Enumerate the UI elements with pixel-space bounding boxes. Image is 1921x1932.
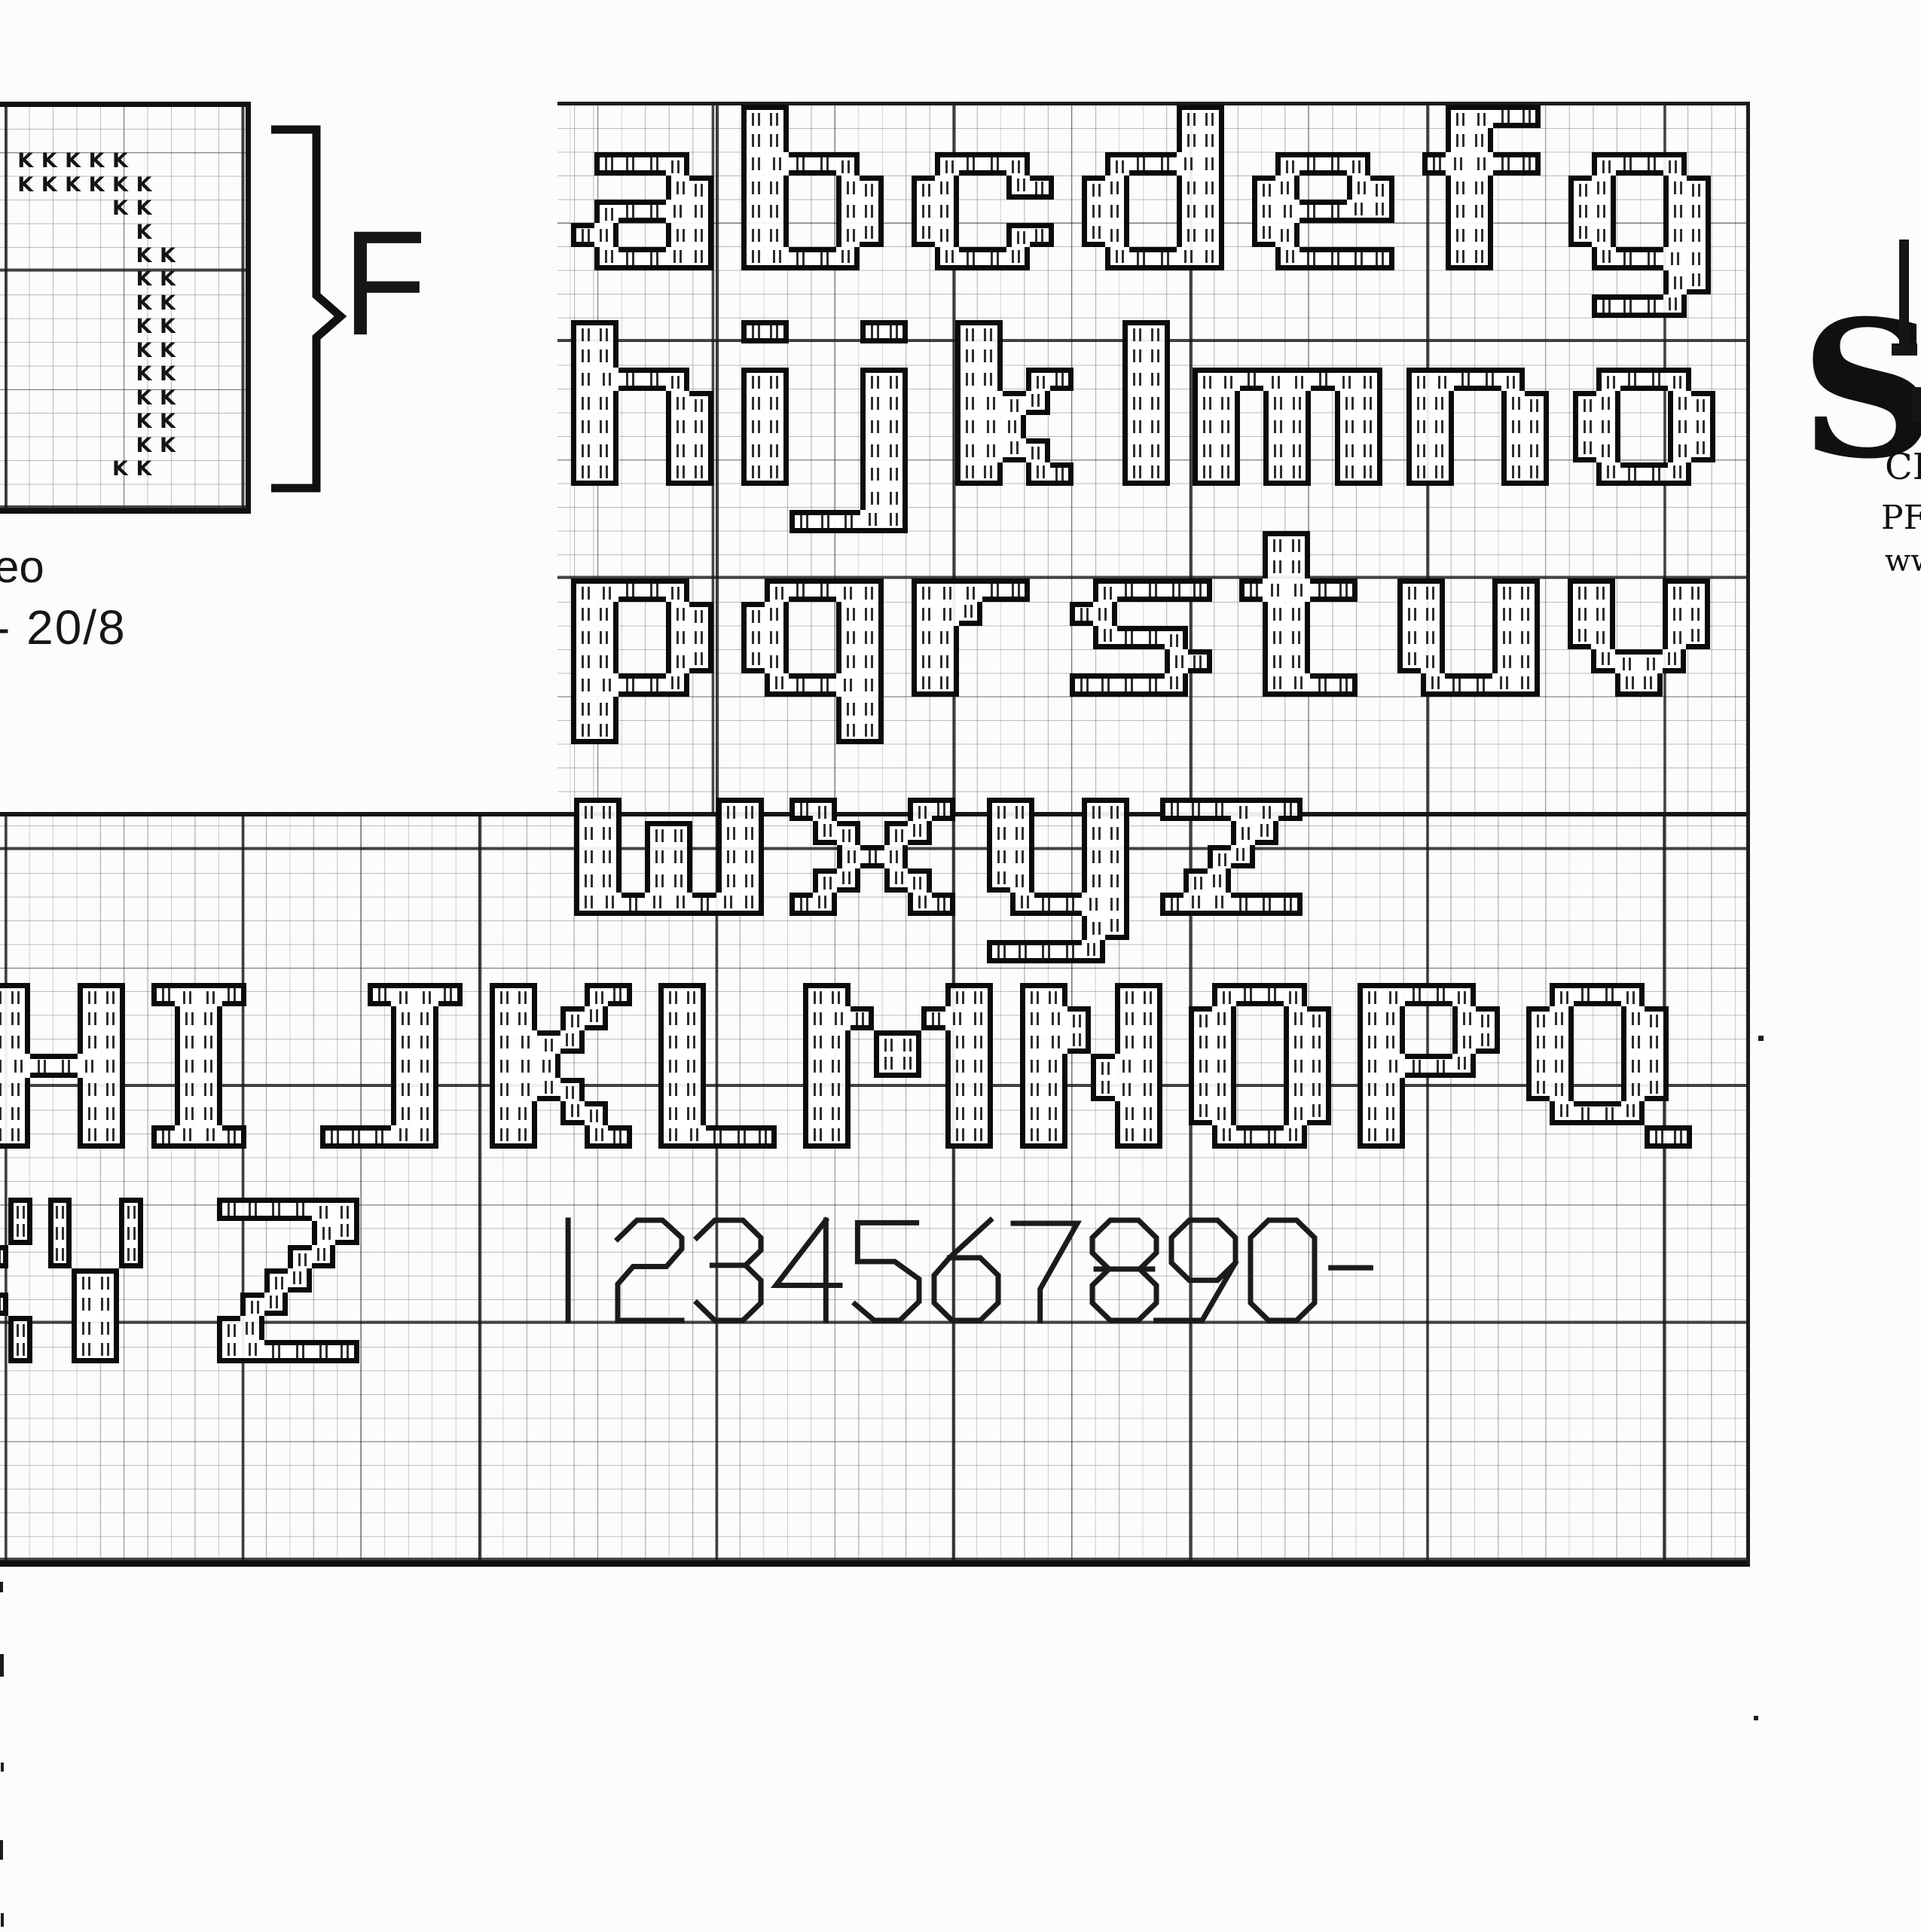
stitch-symbol — [185, 1083, 194, 1096]
stitch-symbol — [1294, 1083, 1303, 1096]
glyph-i-cell — [151, 1125, 175, 1149]
glyph-u-cell — [1492, 626, 1516, 649]
stitch-symbol — [1125, 679, 1133, 691]
glyph-i-cell — [199, 1030, 222, 1054]
glyph-f-cell — [1446, 223, 1470, 247]
glyph-h-cell — [78, 1125, 101, 1149]
stitch-symbol — [1437, 988, 1445, 1001]
glyph-u-cell — [1421, 626, 1445, 649]
stitch-symbol — [932, 1012, 940, 1025]
stitch-symbol — [1691, 608, 1700, 621]
stitch-symbol — [0, 1012, 2, 1025]
stitch-symbol — [997, 806, 1006, 819]
glyph-l-cell — [682, 1125, 706, 1149]
glyph-a-cell — [666, 175, 689, 200]
glyph-n-cell — [1477, 368, 1501, 391]
stitch-symbol — [966, 397, 974, 410]
stitch-symbol — [0, 1298, 1, 1311]
glyph-t-cell — [1310, 673, 1334, 697]
stitch-symbol — [865, 631, 873, 644]
glyph-f-cell — [1493, 152, 1517, 175]
knit-symbol-k: K — [156, 433, 179, 456]
stitch-symbol — [1648, 157, 1656, 170]
glyph-v-cell — [1663, 602, 1686, 626]
stitch-symbol — [317, 1248, 325, 1261]
glyph-z-cell — [1255, 821, 1278, 845]
glyph-n-cell — [1430, 368, 1454, 391]
glyph-x-cell — [884, 868, 908, 893]
glyph-y-cell — [1010, 893, 1034, 916]
stitch-symbol — [1203, 444, 1211, 457]
glyph-w-cell — [645, 868, 669, 893]
stitch-symbol — [673, 205, 682, 218]
glyph-x-cell — [908, 821, 932, 845]
stitch-symbol — [895, 829, 903, 842]
glyph-q-cell — [860, 649, 884, 673]
glyph-k-cell — [490, 983, 513, 1006]
glyph-p-cell — [666, 578, 689, 602]
stitch-symbol — [582, 373, 590, 386]
glyph-f-cell — [1517, 105, 1541, 128]
stitch-symbol — [818, 806, 826, 819]
logo-text-line-1: CI — [1885, 446, 1921, 488]
glyph-r-cell — [935, 602, 959, 626]
stitch-symbol — [1318, 679, 1327, 691]
glyph-f-cell — [1446, 175, 1470, 200]
glyph-c-cell — [959, 152, 982, 175]
stitch-symbol — [162, 1131, 170, 1143]
glyph-n-cell — [1043, 1078, 1067, 1101]
glyph-m-cell — [1335, 462, 1358, 486]
stitch-symbol — [984, 373, 992, 386]
stitch-symbol — [1271, 584, 1279, 597]
stitch-symbol — [1408, 608, 1416, 621]
glyph-p-cell — [1358, 1101, 1381, 1125]
stitch-symbol — [1345, 420, 1354, 433]
glyph-m-cell — [1358, 391, 1382, 415]
stitch-symbol — [1673, 587, 1681, 600]
glyph-h-cell — [594, 343, 618, 368]
stitch-symbol — [1626, 676, 1634, 689]
stitch-symbol — [228, 1324, 236, 1337]
glyph-q-cell — [812, 673, 836, 697]
stitch-symbol — [296, 1203, 304, 1216]
glyph-y-cell — [1105, 868, 1129, 893]
stitch-symbol — [865, 184, 873, 197]
glyph-n-cell — [1020, 1030, 1043, 1054]
stitch-symbol — [814, 1060, 822, 1073]
glyph-p-cell — [594, 673, 618, 697]
glyph-p-cell — [594, 697, 618, 721]
stitch-symbol — [1133, 328, 1141, 341]
glyph-q-cell — [836, 649, 860, 673]
glyph-o-cell — [1691, 415, 1715, 438]
stitch-symbol — [1331, 252, 1339, 265]
glyph-n-cell — [1115, 1006, 1138, 1030]
stitch-symbol — [1101, 679, 1110, 691]
stitch-symbol — [82, 1298, 90, 1311]
glyph-n-cell — [1501, 391, 1525, 415]
glyph-q-cell — [1645, 1125, 1669, 1149]
stitch-symbol — [1626, 991, 1635, 1004]
knit-symbol-k: K — [156, 410, 179, 433]
stitch-symbol — [847, 229, 855, 242]
glyph-l-cell — [1146, 320, 1170, 343]
stitch-symbol — [1110, 182, 1119, 194]
stitch-symbol — [1674, 276, 1682, 289]
stitch-symbol — [1454, 157, 1462, 170]
glyph-q-cell — [1645, 1078, 1669, 1101]
stitch-symbol — [1042, 898, 1050, 911]
stitch-symbol — [1652, 468, 1660, 481]
stitch-symbol — [1281, 229, 1289, 242]
glyph-d-cell — [1177, 247, 1200, 270]
stitch-symbol — [974, 1036, 982, 1048]
stitch-symbol — [1555, 1060, 1563, 1073]
glyph-g-cell — [1592, 152, 1616, 175]
glyph-l-cell — [753, 1125, 777, 1149]
stitch-symbol — [956, 1083, 964, 1096]
glyph-z2-cell — [312, 1221, 335, 1245]
stitch-symbol — [997, 871, 1006, 884]
stitch-symbol — [1632, 1060, 1640, 1073]
digit-0 — [1251, 1220, 1315, 1320]
stitch-symbol — [1345, 465, 1354, 478]
stitch-symbol — [1149, 679, 1157, 691]
stitch-symbol — [1389, 991, 1397, 1004]
glyph-l-cell — [1122, 343, 1146, 368]
stitch-symbol — [1292, 539, 1300, 552]
glyph-v-cell — [1638, 649, 1663, 673]
stitch-symbol — [1295, 376, 1303, 389]
stitch-symbol — [319, 1345, 328, 1358]
glyph-c-cell — [1006, 223, 1030, 247]
stitch-symbol — [518, 1128, 527, 1141]
glyph-f-cell — [1470, 128, 1493, 152]
stitch-symbol — [1263, 205, 1271, 218]
glyph-l-cell — [658, 1006, 682, 1030]
glyph-v-cell — [1591, 578, 1615, 602]
glyph-n-cell — [1115, 1125, 1138, 1149]
stitch-symbol — [1438, 376, 1446, 389]
glyph-l-cell — [1122, 320, 1146, 343]
glyph-j-cell — [884, 462, 908, 486]
stitch-symbol — [585, 874, 593, 887]
stitch-symbol — [687, 1036, 695, 1048]
glyph-k-cell — [1050, 368, 1073, 391]
glyph-c-cell — [959, 247, 982, 270]
glyph-o-cell — [1212, 1101, 1236, 1125]
stitch-symbol — [1412, 988, 1421, 1001]
stitch-symbol — [1463, 1012, 1471, 1025]
stitch-symbol — [687, 1012, 695, 1025]
stitch-symbol — [1412, 1060, 1421, 1073]
glyph-i-cell — [741, 462, 765, 486]
glyph-k-cell — [490, 1078, 513, 1101]
stitch-symbol — [650, 373, 658, 386]
glyph-t-cell — [1334, 578, 1358, 602]
glyph-y-cell — [1034, 893, 1058, 916]
glyph-i-cell — [765, 320, 789, 343]
glyph-k-cell — [979, 368, 1003, 391]
glyph-k-cell — [1026, 368, 1050, 391]
stitch-symbol — [1205, 157, 1214, 170]
stitch-symbol — [940, 205, 948, 218]
stitch-symbol — [127, 1227, 136, 1240]
glyph-m-cell — [1216, 391, 1240, 415]
stitch-symbol — [832, 1128, 840, 1141]
stitch-symbol — [1458, 991, 1466, 1004]
stitch-symbol — [17, 1224, 25, 1237]
glyph-o-cell — [1189, 1006, 1212, 1030]
stitch-symbol — [14, 1060, 23, 1073]
stitch-symbol — [847, 850, 856, 863]
glyph-g-cell — [1687, 270, 1711, 295]
glyph-b-cell — [836, 152, 860, 175]
glyph-k-cell — [513, 1030, 537, 1054]
glyph-f-cell — [1493, 105, 1517, 128]
stitch-symbol — [1697, 420, 1705, 433]
stitch-symbol — [1193, 584, 1202, 597]
glyph-h-cell — [0, 1101, 6, 1125]
logo-partial-letter — [1912, 387, 1921, 422]
stitch-symbol — [582, 420, 590, 433]
stitch-symbol — [940, 631, 948, 644]
glyph-r-cell — [912, 673, 935, 697]
glyph-w-cell — [574, 868, 597, 893]
stitch-symbol — [1019, 945, 1027, 958]
stitch-symbol — [676, 465, 685, 478]
glyph-y2-cell — [48, 1221, 72, 1245]
scan-noise-mark — [0, 1840, 3, 1860]
glyph-m-cell — [1287, 462, 1311, 486]
glyph-t-cell — [1263, 649, 1287, 673]
glyph-m-cell — [1193, 368, 1216, 391]
stitch-symbol — [420, 1060, 429, 1073]
stitch-symbol — [1426, 608, 1434, 621]
stitch-symbol — [500, 991, 508, 1004]
glyph-n-cell — [1115, 1054, 1138, 1078]
glyph-m-cell — [969, 1078, 993, 1101]
glyph-v-cell — [1568, 602, 1591, 626]
glyph-a-cell — [666, 152, 689, 175]
glyph-m-cell — [874, 1030, 898, 1054]
stitch-symbol — [773, 250, 781, 263]
stitch-symbol — [352, 1131, 360, 1143]
glyph-h-cell — [594, 462, 618, 486]
stitch-symbol — [966, 465, 974, 478]
stitch-symbol — [293, 1271, 301, 1284]
stitch-symbol — [773, 157, 781, 170]
stitch-symbol — [251, 1301, 259, 1314]
glyph-y2-cell — [96, 1340, 119, 1363]
stitch-symbol — [423, 991, 431, 1004]
glyph-u-cell — [1397, 578, 1421, 602]
stitch-symbol — [1500, 676, 1508, 689]
stitch-symbol — [228, 1203, 236, 1216]
glyph-d-cell — [1129, 247, 1153, 270]
glyph-y-cell — [1105, 821, 1129, 845]
glyph-o-cell — [1189, 1101, 1212, 1125]
stitch-symbol — [0, 1060, 2, 1073]
glyph-h-cell — [571, 462, 594, 486]
glyph-x2-cell — [0, 1293, 8, 1316]
glyph-i-cell — [741, 391, 765, 415]
stitch-symbol — [1537, 1015, 1545, 1027]
glyph-a-cell — [618, 152, 642, 175]
glyph-y-cell — [1010, 845, 1034, 868]
glyph-o-cell — [1284, 1030, 1307, 1054]
knit-symbol-k: K — [14, 172, 37, 196]
stitch-symbol — [1456, 113, 1464, 126]
glyph-s-cell — [1141, 673, 1165, 697]
glyph-z-cell — [1208, 893, 1231, 916]
stitch-symbol — [1223, 991, 1231, 1004]
glyph-s-cell — [1117, 673, 1141, 697]
stitch-symbol — [945, 250, 954, 263]
stitch-symbol — [676, 397, 685, 410]
glyph-o-cell — [1284, 1101, 1307, 1125]
stitch-symbol — [695, 444, 703, 457]
glyph-k-cell — [1026, 462, 1050, 486]
glyph-m-cell — [1193, 438, 1216, 462]
stitch-symbol — [1284, 803, 1292, 816]
stitch-symbol — [974, 1060, 982, 1073]
stitch-symbol — [1537, 1081, 1545, 1094]
stitch-symbol — [671, 587, 680, 600]
glyph-p-cell — [1452, 1054, 1476, 1078]
glyph-r-cell — [935, 673, 959, 697]
glyph-b-cell — [765, 128, 789, 152]
glyph-q-cell — [1550, 1054, 1574, 1078]
glyph-z2-cell — [264, 1268, 288, 1293]
glyph-z2-cell — [288, 1245, 312, 1268]
glyph-b-cell — [836, 223, 860, 247]
stitch-symbol — [796, 157, 805, 170]
stitch-symbol — [1691, 629, 1700, 642]
glyph-t-cell — [1310, 578, 1334, 602]
stitch-symbol — [1293, 420, 1301, 433]
glyph-u-cell — [1492, 673, 1516, 697]
stitch-symbol — [832, 1060, 840, 1073]
stitch-symbol — [582, 444, 590, 457]
stitch-symbol — [1339, 584, 1348, 597]
glyph-n-cell — [1115, 1101, 1138, 1125]
glyph-h-cell — [689, 438, 713, 462]
glyph-n-cell — [1020, 1054, 1043, 1078]
stitch-symbol — [835, 1012, 843, 1025]
glyph-y-cell — [1105, 798, 1129, 821]
glyph-p-cell — [1452, 1030, 1476, 1054]
stitch-symbol — [841, 160, 850, 173]
stitch-symbol — [1273, 631, 1281, 644]
stitch-symbol — [88, 1083, 96, 1096]
glyph-p-cell — [571, 697, 594, 721]
stitch-symbol — [800, 803, 808, 816]
glyph-x-cell — [837, 845, 860, 868]
glyph-o-cell — [1573, 391, 1596, 415]
glyph-y-cell — [1082, 821, 1105, 845]
glyph-k-cell — [979, 320, 1003, 343]
glyph-h-cell — [642, 368, 666, 391]
stitch-symbol — [856, 1012, 864, 1025]
glyph-s-cell — [1093, 673, 1117, 697]
stitch-symbol — [1579, 184, 1587, 197]
glyph-h-cell — [6, 1030, 30, 1054]
stitch-symbol — [106, 1036, 115, 1048]
glyph-s-cell — [1093, 602, 1117, 626]
stitch-symbol — [770, 608, 778, 621]
stitch-symbol — [582, 679, 590, 691]
stitch-symbol — [1110, 827, 1119, 840]
glyph-a-cell — [666, 200, 689, 223]
glyph-y-cell — [1082, 940, 1105, 963]
glyph-v-cell — [1568, 578, 1591, 602]
stitch-symbol — [890, 850, 898, 863]
stitch-symbol — [1239, 806, 1248, 819]
stitch-symbol — [1273, 539, 1281, 552]
stitch-symbol — [673, 250, 682, 263]
glyph-x-cell — [813, 821, 837, 845]
stitch-symbol — [1170, 634, 1178, 647]
glyph-m-cell — [1216, 438, 1240, 462]
glyph-u-cell — [1421, 673, 1445, 697]
stitch-symbol — [1368, 1083, 1376, 1096]
glyph-n-cell — [1406, 391, 1430, 415]
stitch-symbol — [1692, 184, 1700, 197]
stitch-symbol — [1530, 399, 1538, 412]
glyph-d-cell — [1082, 175, 1105, 200]
glyph-h-cell — [30, 1054, 53, 1078]
knit-symbol-k: K — [132, 291, 155, 315]
glyph-i-cell — [765, 438, 789, 462]
glyph-j-cell — [415, 1125, 438, 1149]
glyph-i-cell — [765, 368, 789, 391]
glyph-g-cell — [1687, 200, 1711, 223]
glyph-x-cell — [813, 868, 837, 893]
glyph-u-cell — [1516, 578, 1540, 602]
stitch-symbol — [56, 1227, 64, 1240]
stitch-symbol — [687, 1060, 695, 1073]
stitch-symbol — [1008, 420, 1016, 433]
stitch-symbol — [420, 1083, 429, 1096]
stitch-symbol — [695, 465, 703, 478]
stitch-symbol — [847, 703, 855, 716]
glyph-x-cell — [932, 798, 955, 821]
stitch-symbol — [1692, 205, 1700, 218]
glyph-m-cell — [1358, 368, 1382, 391]
glyph-a-cell — [666, 247, 689, 270]
glyph-f-cell — [1470, 247, 1493, 270]
knit-symbol-k: K — [84, 149, 108, 172]
stitch-symbol — [1368, 1036, 1376, 1048]
stitch-symbol — [1426, 631, 1434, 644]
stitch-symbol — [600, 444, 608, 457]
glyph-h-cell — [101, 1125, 125, 1149]
glyph-k-cell — [979, 343, 1003, 368]
glyph-q-cell — [1597, 983, 1621, 1006]
glyph-m-cell — [945, 1125, 969, 1149]
glyph-p-cell — [571, 602, 594, 626]
glyph-b-cell — [741, 105, 765, 128]
glyph-b-cell — [741, 152, 765, 175]
digit-2 — [618, 1220, 682, 1320]
glyph-o-cell — [1668, 391, 1691, 415]
stitch-symbol — [1294, 584, 1303, 597]
glyph-k-cell — [955, 391, 979, 415]
glyph-e-cell — [1347, 175, 1370, 200]
glyph-j-cell — [860, 415, 884, 438]
